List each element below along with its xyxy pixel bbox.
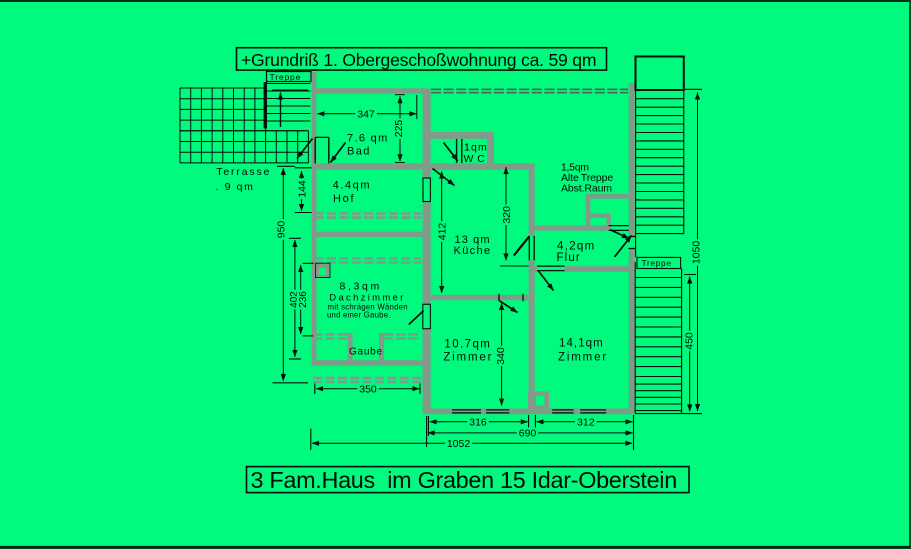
svg-text:Hof: Hof xyxy=(333,193,355,205)
svg-text:. 9 qm: . 9 qm xyxy=(216,181,255,193)
svg-text:Flur: Flur xyxy=(557,252,581,264)
svg-text:8,3qm: 8,3qm xyxy=(340,281,382,293)
svg-text:Terrasse: Terrasse xyxy=(216,166,271,178)
svg-text:690: 690 xyxy=(519,428,537,440)
svg-text:7.6 qm: 7.6 qm xyxy=(347,133,389,145)
svg-text:Treppe: Treppe xyxy=(270,72,302,82)
svg-text:Zimmer: Zimmer xyxy=(558,352,608,364)
svg-text:Zimmer: Zimmer xyxy=(443,352,493,364)
svg-text:1052: 1052 xyxy=(447,438,471,450)
svg-text:3 Fam.Haus im Graben 15 Idar-: 3 Fam.Haus im Graben 15 Idar-Oberstein xyxy=(251,467,677,493)
svg-text:Abst.Raum: Abst.Raum xyxy=(561,183,612,195)
svg-text:225: 225 xyxy=(393,120,405,138)
svg-text:236: 236 xyxy=(298,291,309,308)
svg-text:412: 412 xyxy=(436,223,448,241)
svg-text:10.7qm: 10.7qm xyxy=(444,339,491,351)
svg-text:Gaube: Gaube xyxy=(349,347,383,358)
svg-text:350: 350 xyxy=(359,383,377,395)
svg-text:14,1qm: 14,1qm xyxy=(559,338,604,350)
svg-text:950: 950 xyxy=(276,221,288,239)
svg-text:4,2qm: 4,2qm xyxy=(557,241,596,253)
svg-text:Bad: Bad xyxy=(347,146,371,158)
svg-text:1qm: 1qm xyxy=(464,142,488,154)
svg-text:W C: W C xyxy=(464,153,486,165)
svg-text:Küche: Küche xyxy=(454,245,492,257)
svg-text:347: 347 xyxy=(357,109,375,121)
svg-text:312: 312 xyxy=(577,417,595,429)
svg-text:316: 316 xyxy=(469,417,487,429)
svg-text:13 qm: 13 qm xyxy=(455,234,491,246)
svg-text:450: 450 xyxy=(683,332,695,350)
svg-text:+Grundriß 1. Obergeschoßwohnun: +Grundriß 1. Obergeschoßwohnung ca. 59 q… xyxy=(241,50,596,70)
svg-text:340: 340 xyxy=(495,347,507,365)
svg-text:und einer Gaube.: und einer Gaube. xyxy=(327,311,391,320)
svg-text:Treppe: Treppe xyxy=(642,258,672,268)
svg-text:144: 144 xyxy=(296,180,308,198)
svg-text:1050: 1050 xyxy=(690,241,702,265)
svg-text:320: 320 xyxy=(501,206,513,224)
svg-text:4.4qm: 4.4qm xyxy=(333,180,372,192)
